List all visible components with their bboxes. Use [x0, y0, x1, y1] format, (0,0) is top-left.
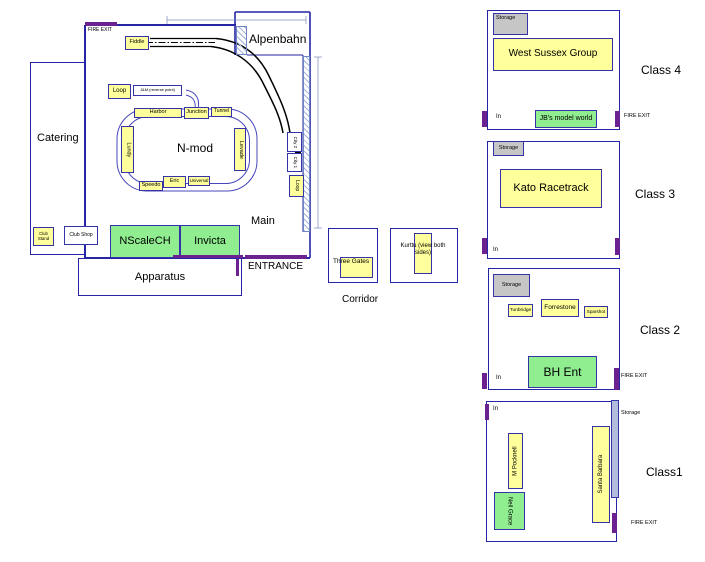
kurttu-label: Kurttu (view both sides) [397, 243, 449, 256]
class4-storage-box: Storage [493, 13, 528, 35]
alpenbahn-label: Alpenbahn [249, 33, 306, 46]
class2-exit-strip-left [482, 373, 487, 389]
santa-barbara-label: Santa Barbara [598, 455, 604, 494]
nscalech-label: NScaleCH [119, 236, 170, 248]
corridor-label: Corridor [342, 294, 378, 305]
class3-storage-box: Storage [493, 141, 524, 156]
entrance-label: ENTRANCE [248, 261, 303, 272]
city1-module: City 1 [287, 153, 302, 172]
club-stand-box: Club Stand [33, 227, 54, 246]
class3-label: Class 3 [635, 188, 675, 201]
forrestone-label: Forrestone [544, 305, 575, 312]
loop-right-module: Loop [289, 175, 304, 197]
speedo-label: Speedo [142, 183, 161, 189]
west-sussex-label: West Sussex Group [509, 49, 598, 60]
class1-label: Class1 [646, 466, 683, 479]
class4-storage-label: Storage [496, 16, 515, 22]
class1-exit-strip-right [612, 513, 617, 533]
three-gates-label: Three Gates [333, 258, 369, 265]
invicta-label: Invicta [194, 236, 226, 248]
nmod-label: N-mod [160, 142, 230, 155]
class2-label: Class 2 [640, 324, 680, 337]
club-shop-label: Club Shop [69, 233, 92, 238]
bh-ent-box: BH Ent [528, 356, 597, 388]
class2-storage-box: Storage [493, 274, 530, 297]
loop-module: Loop [108, 84, 131, 99]
class3-room: Storage Kato Racetrack In [487, 141, 620, 259]
m-pocknell-box: M Pocknell [508, 433, 523, 489]
lundy-label: Lundy [125, 142, 131, 157]
class1-fire-exit-label: FIRE EXIT [631, 520, 657, 526]
class2-exit-strip-right [614, 368, 619, 390]
harbor-label: Harbor [150, 110, 167, 116]
invicta-box: Invicta [180, 225, 240, 258]
loop-label: Loop [113, 88, 126, 94]
main-area-label: Main [251, 215, 275, 227]
class2-room: Storage Tunbridge Forrestone Sparshot BH… [488, 268, 620, 390]
fiddle-label: Fiddle [130, 40, 145, 46]
class1-in-label: In [493, 406, 498, 413]
class1-exit-strip-topleft [485, 404, 489, 420]
club-shop-box: Club Shop [64, 226, 98, 245]
main-hall-walls [85, 12, 310, 258]
santa-barbara-box: Santa Barbara [592, 426, 610, 523]
class2-in-label: In [496, 375, 501, 382]
class4-exit-strip-left [482, 111, 487, 127]
kato-box: Kato Racetrack [500, 169, 602, 208]
floor-plan: FIRE EXIT Alpenbahn Fiddle Loop J&M (rev… [0, 0, 705, 562]
right-wall-hatch-strip [303, 56, 310, 232]
class4-room: Storage West Sussex Group JB's model wor… [487, 10, 620, 130]
tunbridge-box: Tunbridge [508, 304, 533, 317]
m-pocknell-label: M Pocknell [512, 446, 518, 475]
lundy-module: Lundy [121, 126, 134, 173]
fiddle-module: Fiddle [125, 36, 149, 50]
tunnel-module: Tunnel [211, 107, 232, 117]
city2-module: City 2 [287, 132, 302, 152]
class2-storage-label: Storage [502, 283, 521, 289]
kato-label: Kato Racetrack [513, 183, 588, 195]
junction-module: Junction [184, 107, 209, 119]
city2-label: City 2 [292, 136, 297, 148]
levade-module: Levade [234, 128, 246, 171]
class4-exit-strip-right [615, 111, 620, 127]
fire-exit-strip-top [85, 22, 117, 26]
levade-label: Levade [237, 140, 243, 158]
tunnel-label: Tunnel [214, 109, 229, 114]
universal-module: Universal [188, 176, 210, 186]
fire-exit-label-top: FIRE EXIT [88, 28, 112, 34]
neil-grace-label: Neil Grace [506, 497, 512, 525]
junction-label: Junction [186, 110, 207, 116]
jbs-label: JB's model world [540, 115, 593, 122]
class1-storage-label: Storage [621, 410, 640, 416]
loop-right-label: Loop [294, 180, 299, 191]
class1-storage-strip [611, 400, 619, 498]
entrance-strip-right [245, 255, 307, 259]
loop-note-box: J&M (reverse point) [133, 85, 182, 96]
class1-room: In M Pocknell Neil Grace Santa Barbara [486, 401, 617, 542]
class3-exit-strip-right [615, 238, 620, 255]
class4-label: Class 4 [641, 64, 681, 77]
catering-label: Catering [37, 132, 79, 144]
tunbridge-label: Tunbridge [510, 308, 531, 313]
alpenbahn-hatch-strip [236, 26, 247, 55]
neil-grace-box: Neil Grace [494, 492, 525, 530]
club-stand-label: Club Stand [34, 232, 53, 241]
speedo-module: Speedo [139, 181, 163, 191]
universal-label: Universal [190, 179, 209, 184]
harbor-module: Harbor [134, 108, 182, 118]
apparatus-label: Apparatus [78, 271, 242, 283]
nscalech-box: NScaleCH [110, 225, 180, 258]
class3-exit-strip-left [482, 238, 487, 254]
west-sussex-box: West Sussex Group [493, 38, 613, 71]
city1-label: City 1 [292, 157, 297, 169]
class2-fire-exit-label: FIRE EXIT [621, 373, 647, 379]
loop-note-label: J&M (reverse point) [140, 88, 175, 92]
class4-fire-exit-label: FIRE EXIT [624, 113, 650, 119]
sparshot-label: Sparshot [587, 310, 605, 315]
jbs-box: JB's model world [535, 110, 597, 128]
forrestone-box: Forrestone [541, 299, 579, 317]
class3-storage-label: Storage [499, 146, 518, 152]
bh-ent-label: BH Ent [543, 366, 581, 379]
class3-in-label: In [493, 247, 498, 254]
eric-label: Eric [170, 179, 179, 185]
sparshot-box: Sparshot [584, 306, 608, 318]
class4-in-label: In [496, 114, 501, 121]
eric-module: Eric [163, 176, 186, 188]
